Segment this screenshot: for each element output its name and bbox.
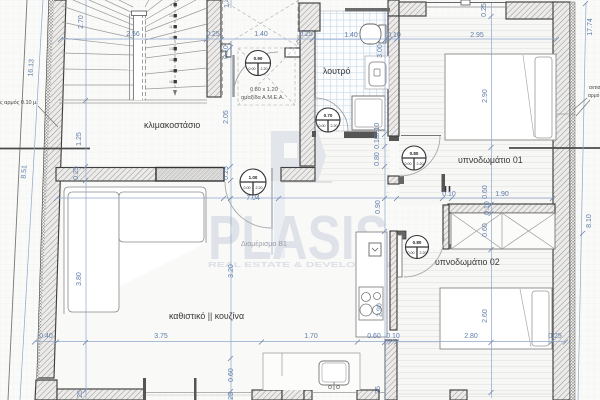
svg-text:0.80 x 1.20: 0.80 x 1.20 [250,87,278,93]
svg-text:0.60: 0.60 [228,368,235,382]
svg-text:0.25: 0.25 [223,166,230,180]
svg-text:0.00: 0.00 [405,162,412,166]
svg-text:καθιστικό || κουζίνα: καθιστικό || κουζίνα [169,311,244,321]
svg-text:13: 13 [169,47,173,51]
svg-text:0.10: 0.10 [442,191,456,198]
svg-text:2.20: 2.20 [420,251,427,255]
svg-text:0.10: 0.10 [374,135,381,149]
svg-text:0.25: 0.25 [299,31,313,38]
svg-text:0.10: 0.10 [386,333,400,340]
svg-text:16.13: 16.13 [27,59,35,77]
svg-text:0.00: 0.00 [408,251,415,255]
svg-text:3.75: 3.75 [154,333,168,340]
svg-text:υπνοδωμάτιο 02: υπνοδωμάτιο 02 [435,257,500,267]
svg-text:2.20: 2.20 [331,124,338,128]
svg-text:7.04: 7.04 [246,195,260,202]
svg-text:1.40: 1.40 [224,0,231,8]
svg-text:14: 14 [169,58,173,62]
svg-text:16: 16 [169,80,173,84]
svg-text:2.95: 2.95 [470,32,484,39]
svg-text:12: 12 [169,36,173,40]
svg-text:0.80: 0.80 [413,240,422,245]
svg-text:0.10: 0.10 [387,32,401,39]
svg-text:2.60: 2.60 [482,309,489,323]
svg-text:0.25: 0.25 [206,31,220,38]
svg-text:αντισ: αντισ [589,85,600,91]
svg-text:2.20: 2.20 [256,186,263,190]
svg-text:0.60: 0.60 [482,223,489,237]
svg-text:λουτρό: λουτρό [323,66,350,76]
svg-text:2.05: 2.05 [223,110,230,124]
svg-text:25: 25 [77,390,84,398]
svg-text:11: 11 [169,25,173,29]
svg-text:0.10: 0.10 [223,45,230,59]
svg-text:3.00: 3.00 [377,44,384,58]
svg-text:8.51: 8.51 [21,165,29,179]
svg-text:1.70: 1.70 [304,333,318,340]
svg-text:3.20: 3.20 [228,264,235,278]
svg-text:2.90: 2.90 [377,303,384,317]
svg-text:0.80: 0.80 [410,151,419,156]
svg-text:2.56: 2.56 [126,31,140,38]
svg-text:0.25: 0.25 [481,3,488,17]
svg-text:9: 9 [170,3,172,7]
svg-text:25: 25 [228,392,235,400]
svg-text:2.80: 2.80 [464,333,478,340]
svg-text:0.00: 0.00 [249,67,256,71]
svg-text:0.90: 0.90 [254,56,263,61]
svg-text:0.00: 0.00 [244,186,251,190]
svg-text:2.20: 2.20 [261,67,268,71]
svg-text:0.25: 0.25 [548,333,562,340]
svg-text:0.60: 0.60 [482,185,489,199]
svg-text:3.80: 3.80 [76,272,83,286]
svg-text:κλιμακοστάσιο: κλιμακοστάσιο [144,120,200,130]
svg-text:0.70: 0.70 [324,113,333,118]
svg-text:8.10: 8.10 [586,214,593,228]
svg-text:1.40: 1.40 [254,31,268,38]
svg-text:υπνοδωμάτιο 01: υπνοδωμάτιο 01 [458,155,523,165]
svg-text:0.10: 0.10 [374,123,381,137]
svg-text:0.00: 0.00 [319,124,326,128]
svg-text:10: 10 [169,14,173,18]
svg-text:0.80: 0.80 [374,152,381,166]
svg-text:αμαξίδα Α.Μ.Ε.Α.: αμαξίδα Α.Μ.Ε.Α. [241,95,285,101]
svg-text:25: 25 [375,386,382,394]
svg-text:2.20: 2.20 [417,162,424,166]
svg-text:2.90: 2.90 [482,89,489,103]
svg-text:Διαμέρισμα Β1: Διαμέρισμα Β1 [241,240,287,248]
svg-text:1.40: 1.40 [344,32,358,39]
svg-text:0.10: 0.10 [484,201,491,215]
svg-text:0.25: 0.25 [73,166,80,180]
svg-text:2.70: 2.70 [78,15,85,29]
svg-text:0.40: 0.40 [39,333,53,340]
svg-text:0.60: 0.60 [367,333,381,340]
svg-text:0.90: 0.90 [375,200,382,214]
svg-text:15: 15 [169,69,173,73]
svg-text:17.74: 17.74 [587,18,594,36]
svg-text:1.25: 1.25 [76,132,83,146]
svg-text:αρμό: αρμό [588,92,600,99]
svg-text:ς αρμός 0.10 μ.: ς αρμός 0.10 μ. [0,99,38,106]
svg-text:1.00: 1.00 [249,175,258,180]
svg-text:1.90: 1.90 [495,191,509,198]
